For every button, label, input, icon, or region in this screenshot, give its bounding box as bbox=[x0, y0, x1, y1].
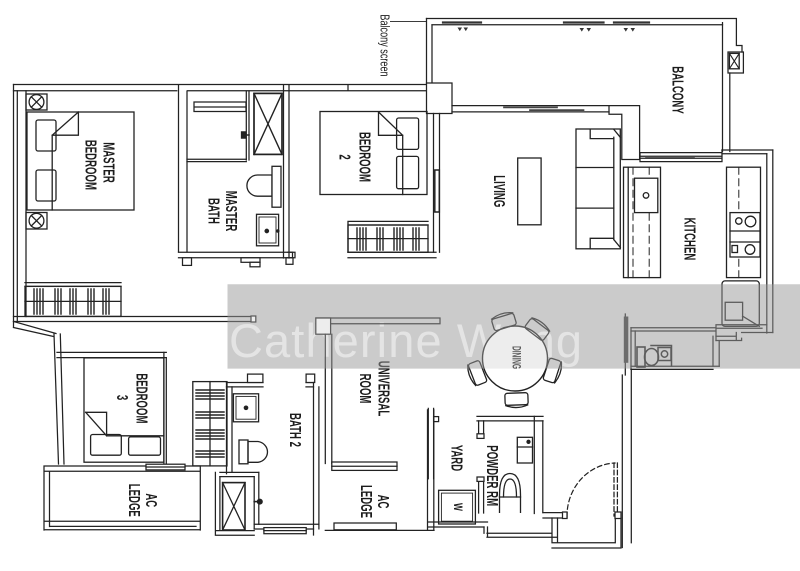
svg-text:LEDGE: LEDGE bbox=[357, 485, 375, 518]
svg-text:ROOM: ROOM bbox=[356, 374, 374, 404]
svg-text:AC: AC bbox=[142, 493, 160, 507]
svg-text:BEDROOM: BEDROOM bbox=[82, 140, 100, 190]
svg-text:BALCONY: BALCONY bbox=[669, 66, 687, 114]
svg-text:POWDER RM: POWDER RM bbox=[484, 445, 502, 506]
svg-text:2: 2 bbox=[336, 154, 354, 159]
svg-text:BEDROOM: BEDROOM bbox=[133, 373, 151, 423]
svg-text:3: 3 bbox=[113, 395, 131, 400]
svg-text:KITCHEN: KITCHEN bbox=[681, 218, 699, 261]
svg-text:BEDROOM: BEDROOM bbox=[356, 132, 374, 182]
svg-text:Balcony screen: Balcony screen bbox=[377, 14, 391, 76]
svg-text:MASTER: MASTER bbox=[222, 191, 240, 232]
svg-text:LIVING: LIVING bbox=[491, 175, 509, 207]
svg-text:AC: AC bbox=[374, 495, 392, 509]
svg-text:UNIVERSAL: UNIVERSAL bbox=[375, 361, 393, 416]
svg-text:MASTER: MASTER bbox=[100, 142, 118, 183]
svg-text:W: W bbox=[451, 503, 464, 511]
svg-text:BATH: BATH bbox=[205, 198, 223, 224]
svg-text:LEDGE: LEDGE bbox=[126, 484, 144, 517]
svg-text:BATH 2: BATH 2 bbox=[287, 413, 305, 447]
svg-text:YARD: YARD bbox=[448, 445, 466, 471]
